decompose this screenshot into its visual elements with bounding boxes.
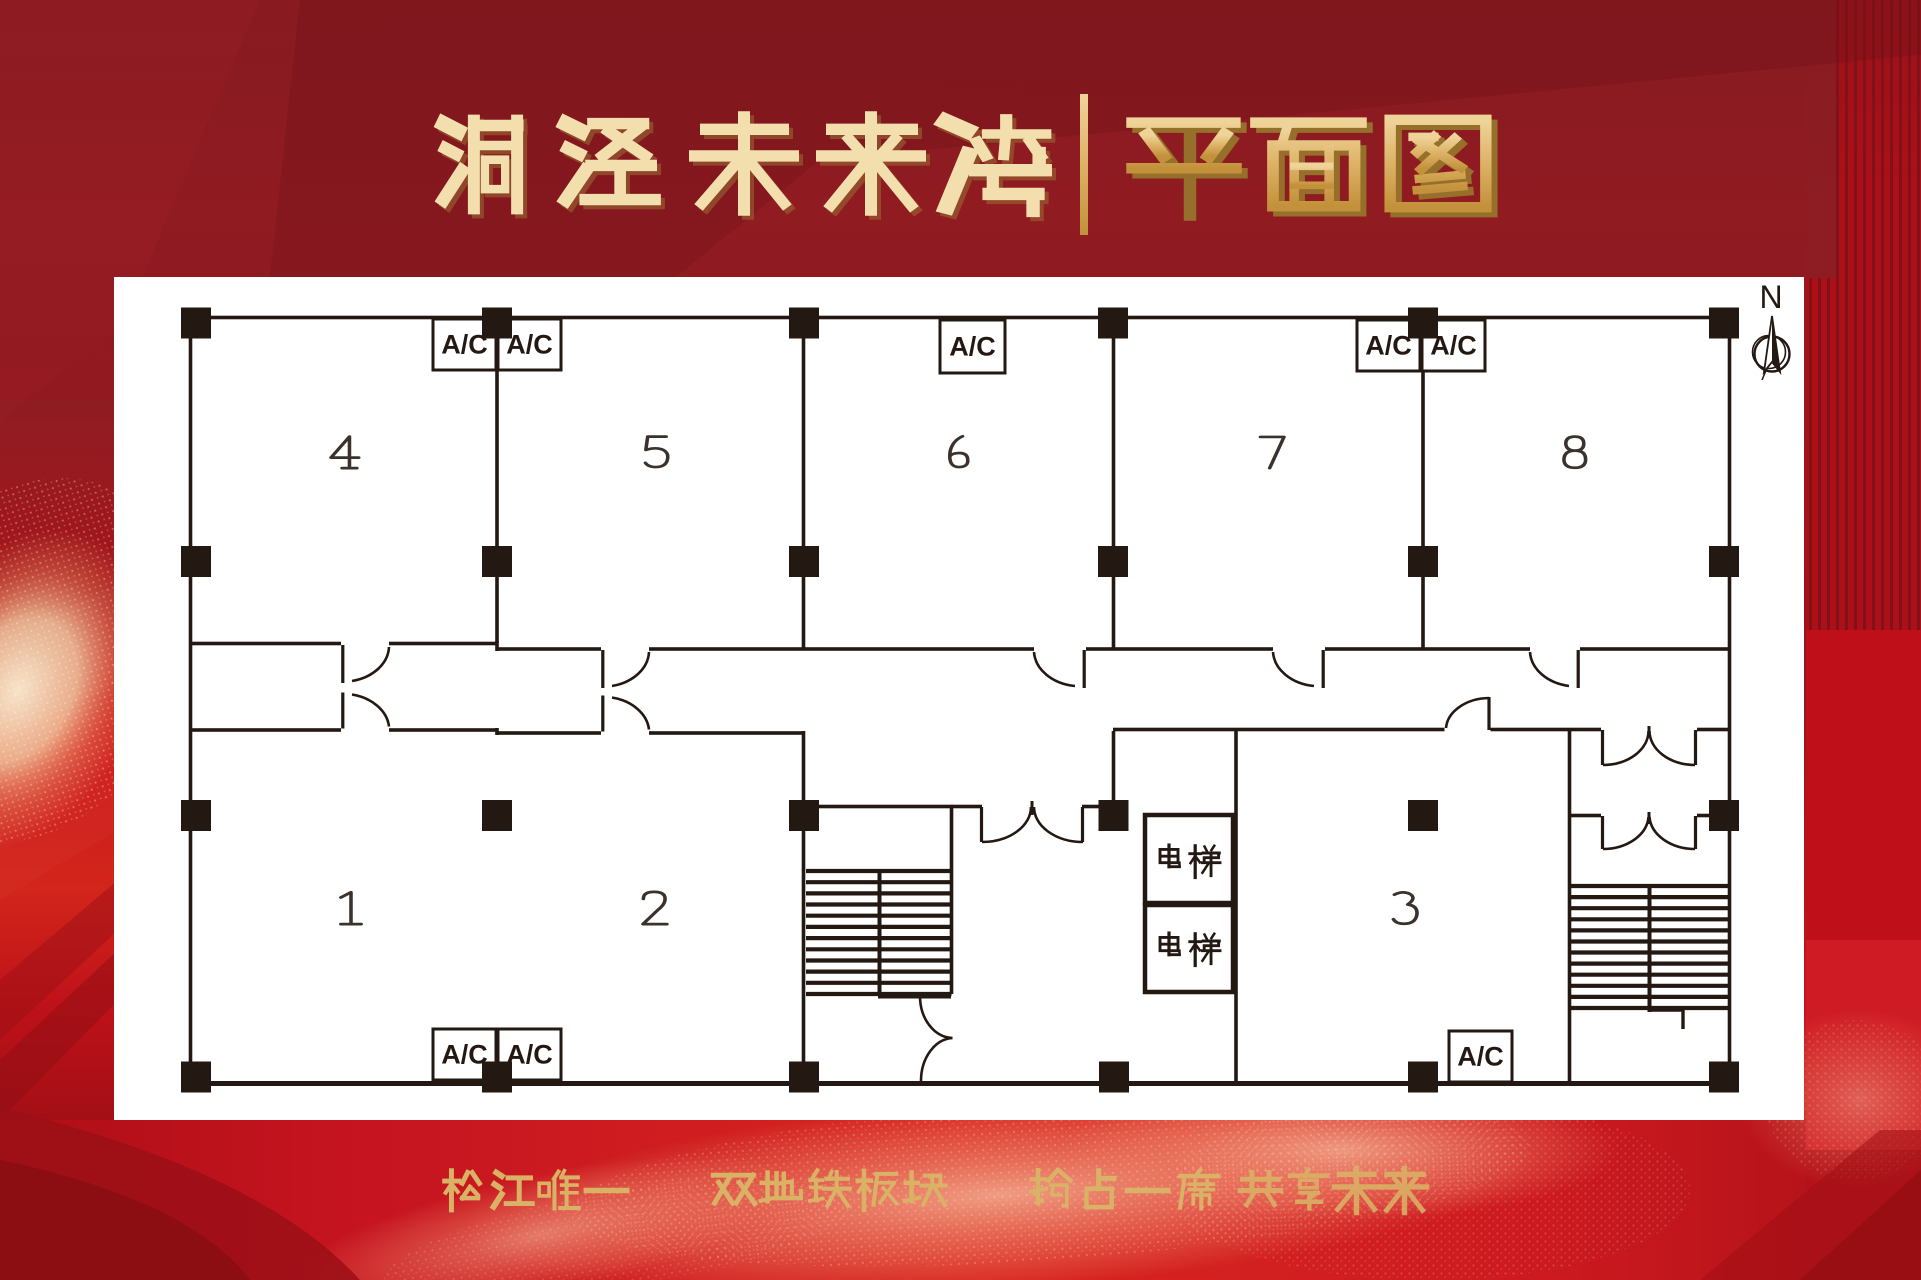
svg-text:A/C: A/C xyxy=(1457,1042,1504,1072)
svg-text:A/C: A/C xyxy=(441,330,488,360)
svg-text:A/C: A/C xyxy=(1365,331,1412,361)
svg-text:A/C: A/C xyxy=(506,330,553,360)
svg-text:A/C: A/C xyxy=(949,332,996,362)
svg-text:A/C: A/C xyxy=(441,1040,488,1070)
svg-text:N: N xyxy=(1759,279,1782,315)
svg-text:A/C: A/C xyxy=(506,1040,553,1070)
